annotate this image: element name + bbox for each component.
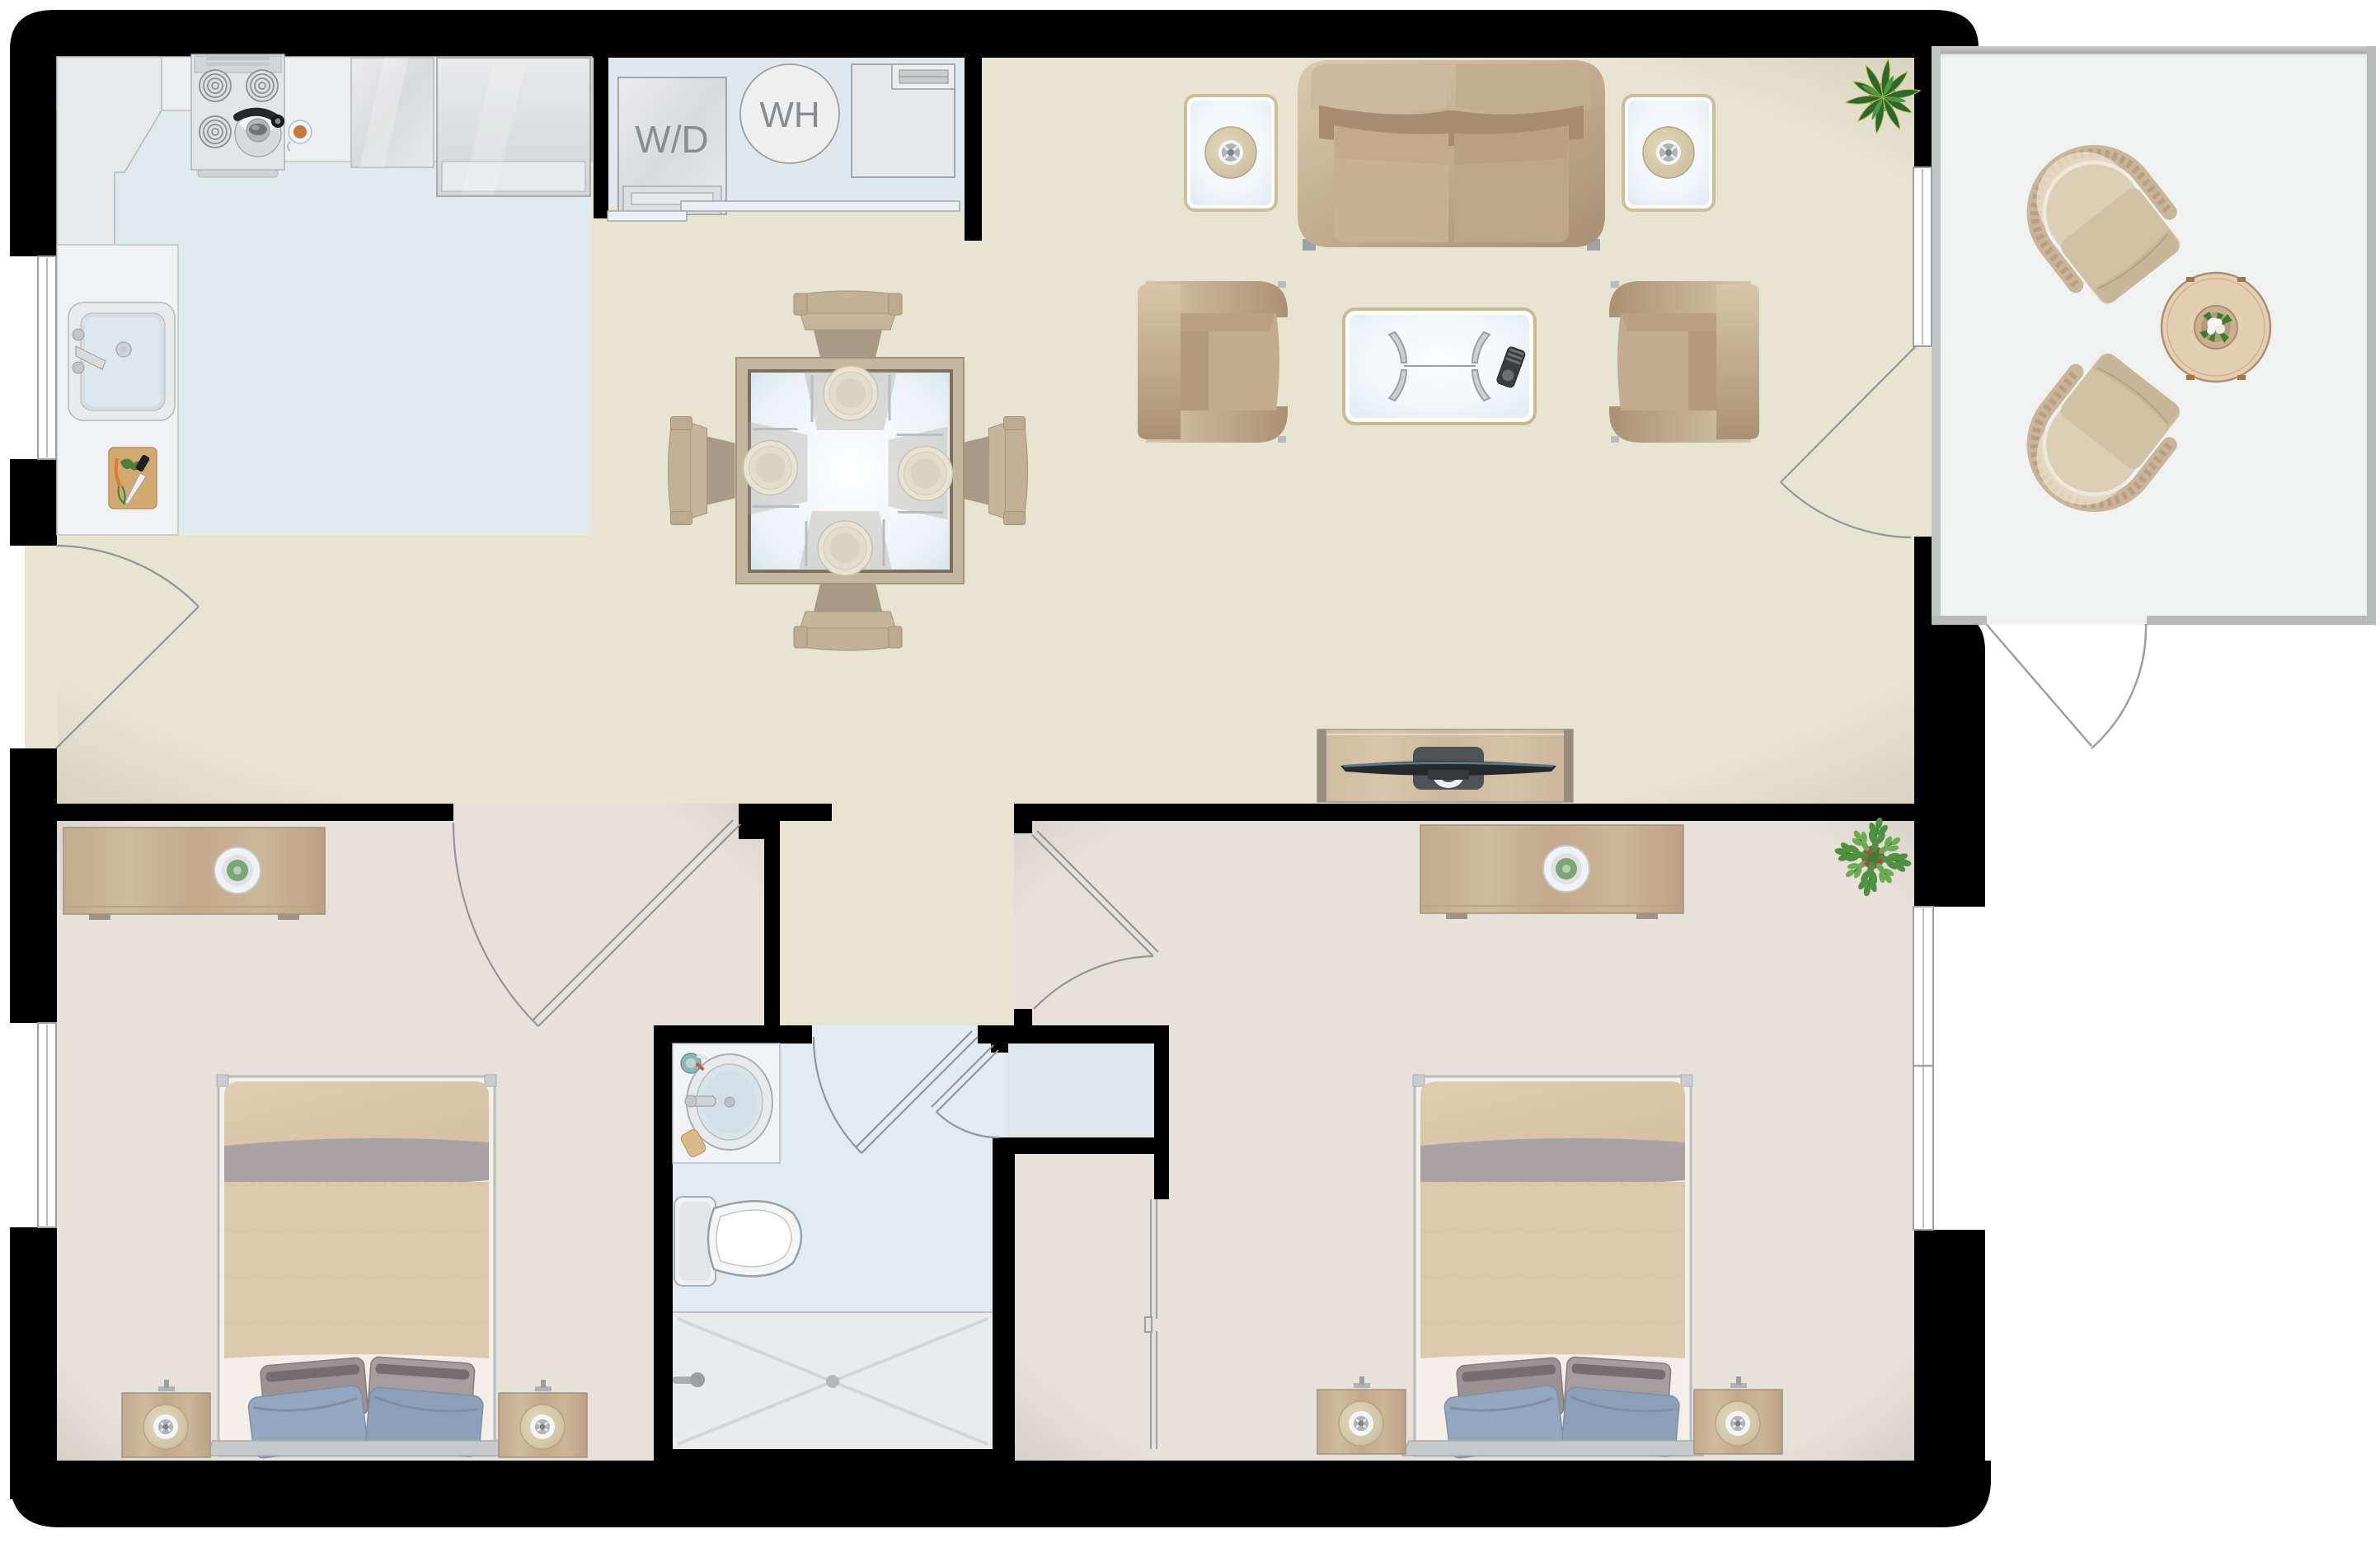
svg-text:W/D: W/D [635,118,708,161]
svg-text:WH: WH [759,95,819,135]
